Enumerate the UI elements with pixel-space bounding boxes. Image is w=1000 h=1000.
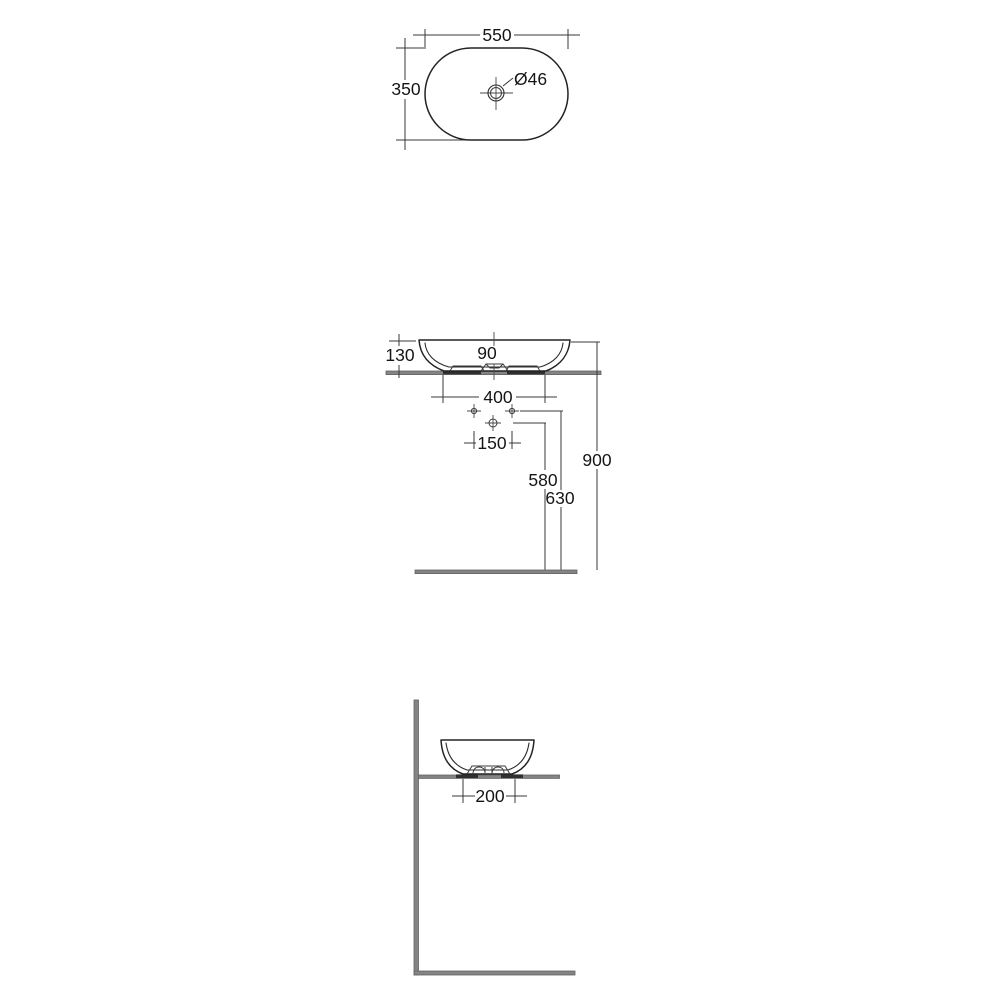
dim-label-base-width: 400 (483, 387, 512, 407)
dim-label-worktop-height: 900 (582, 450, 611, 470)
basin-rim-outline (425, 48, 568, 140)
drain-center-marker (485, 415, 501, 431)
floor-surface (414, 971, 575, 975)
dim-label-drain-height: 580 (528, 470, 557, 490)
worktop-surface (419, 775, 560, 778)
dim-base-depth: 200 (452, 779, 527, 806)
dim-label-center: 90 (477, 343, 497, 363)
dim-hole-spacing: 150 (464, 431, 521, 453)
dim-label-hole-height: 630 (545, 488, 574, 508)
dim-width: 550 (413, 25, 580, 49)
mounting-pad-right (501, 774, 523, 778)
side-view: 200 (414, 700, 575, 975)
dim-label-depth: 350 (391, 79, 420, 99)
dim-label-basin-height: 130 (385, 345, 414, 365)
marker-cross (485, 415, 501, 431)
top-view: 550 350 Ø46 (391, 25, 580, 150)
dim-worktop-height: 900 (571, 342, 612, 570)
marker-connector-lines (513, 411, 563, 423)
floor-surface (415, 570, 577, 574)
dim-label-width: 550 (482, 25, 511, 45)
tap-hole-marker-left (467, 404, 481, 418)
dim-label-hole-spacing: 150 (477, 433, 506, 453)
mounting-pad-left (456, 774, 478, 778)
basin-side-outline (441, 740, 534, 774)
marker-cross (467, 404, 481, 418)
front-view: 90 130 400 150 (385, 332, 611, 574)
dim-label-drain: Ø46 (514, 69, 547, 89)
drawing-sheet: 550 350 Ø46 90 (0, 0, 1000, 1000)
dim-hole-height: 630 (545, 411, 574, 570)
dim-label-base-depth: 200 (475, 786, 504, 806)
wall-surface (414, 700, 419, 975)
washbasin-technical-drawing: 550 350 Ø46 90 (0, 0, 1000, 1000)
